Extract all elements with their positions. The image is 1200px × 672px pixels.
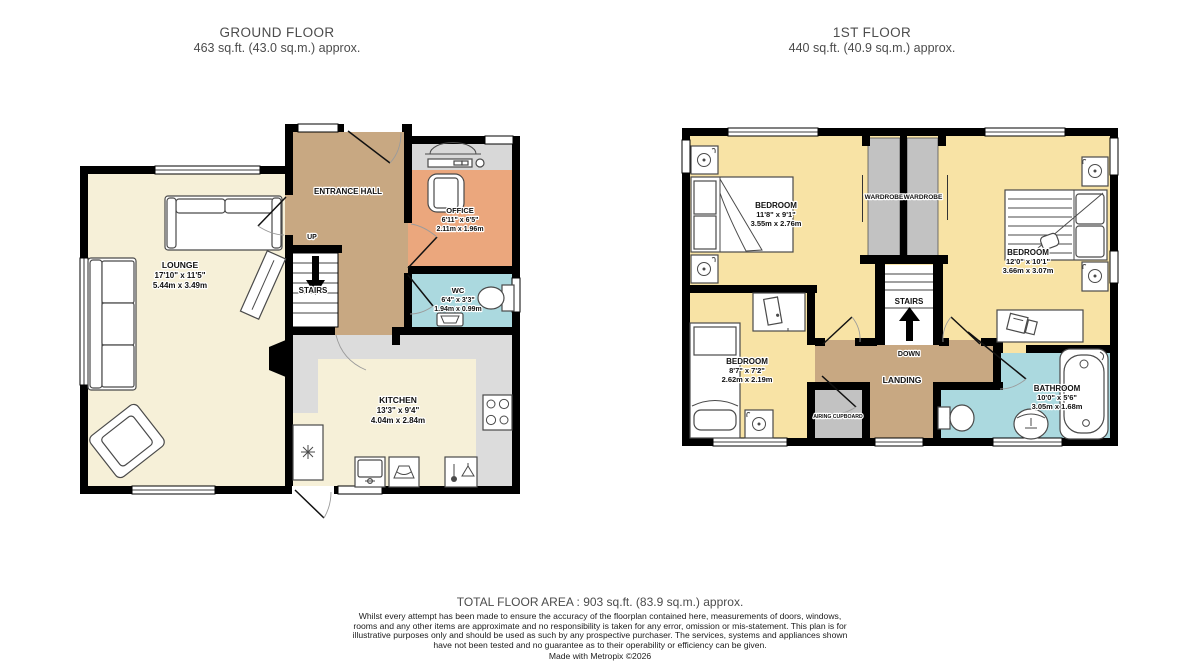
bathroom-label-ft: 10'0" x 5'6" [1037,393,1077,402]
lounge-label-name: LOUNGE [162,260,199,270]
bathroom-label-name: BATHROOM [1034,384,1081,393]
first-floor-area-text: 440 sq.ft. (40.9 sq.m.) approx. [672,41,1072,55]
ground-floor-title: GROUND FLOOR 463 sq.ft. (43.0 sq.m.) app… [77,25,477,55]
nightstand-icon [691,255,718,283]
landing-label: LANDING [883,375,922,385]
sofa-icon [165,196,282,250]
credit-text: Made with Metropix ©2026 [350,651,850,661]
disclaimer-text: Whilst every attempt has been made to en… [350,612,850,650]
nightstand-icon [745,410,773,438]
wc-sink-icon [437,313,463,326]
bathroom-sink-icon [1014,409,1048,439]
kitchen-label-ft: 13'3" x 9'4" [377,406,420,415]
desk-bedroom3-icon [753,293,805,331]
bedroom2-label-name: BEDROOM [1007,248,1049,257]
stairs-down-label: DOWN [898,351,920,358]
wc-label-name: WC [452,286,465,295]
nightstand-icon [1082,157,1108,186]
wc-toilet-icon [478,285,514,311]
kitchen-label-name: KITCHEN [379,395,417,405]
bedroom1-label-m: 3.55m x 2.76m [751,219,802,228]
stairs-up-label: UP [307,234,317,241]
lounge-label-m: 5.44m x 3.49m [153,281,207,290]
nightstand-icon [691,146,718,174]
wc-label-ft: 6'4" x 3'3" [441,297,474,304]
stove-icon [483,395,512,430]
fridge-icon [293,425,323,480]
desk-bedroom2-icon [997,310,1083,342]
first-floor-plan: BEDROOM 11'8" x 9'1" 3.55m x 2.76m WARDR… [670,118,1130,458]
bedroom3-label-name: BEDROOM [726,357,768,366]
first-floor-title-text: 1ST FLOOR [672,25,1072,40]
bathroom-label-m: 3.05m x 1.68m [1032,402,1083,411]
bedroom1-label-ft: 11'8" x 9'1" [756,210,796,219]
sofa-left-icon [88,258,136,390]
total-floor-area: TOTAL FLOOR AREA : 903 sq.ft. (83.9 sq.m… [350,595,850,609]
boiler-icon [445,457,477,487]
ground-floor-title-text: GROUND FLOOR [77,25,477,40]
nightstand-icon [1082,262,1108,291]
ground-floor-plan: LOUNGE 17'10" x 11'5" 5.44m x 3.49m ENTR… [70,118,540,538]
bedroom3-label-ft: 8'7" x 7'2" [729,366,765,375]
footer: TOTAL FLOOR AREA : 903 sq.ft. (83.9 sq.m… [350,595,850,661]
wc-label-m: 1.94m x 0.99m [434,306,481,313]
kitchen-label-m: 4.04m x 2.84m [371,416,425,425]
lounge-label-ft: 17'10" x 11'5" [155,271,206,280]
entrance-hall-label: ENTRANCE HALL [314,187,382,196]
stairs-first-label: STAIRS [895,297,924,306]
washer-icon [389,457,419,487]
office-label-name: OFFICE [446,206,474,215]
ground-floor-area-text: 463 sq.ft. (43.0 sq.m.) approx. [77,41,477,55]
office-label-ft: 6'11" x 6'5" [442,217,479,224]
wardrobe1-label: WARDROBE [865,194,904,201]
airing-cupboard-label: AIRING CUPBOARD [813,414,863,420]
bedroom2-label-m: 3.66m x 3.07m [1003,266,1054,275]
bedroom3-label-m: 2.62m x 2.19m [722,375,773,384]
toilet-icon [938,405,974,431]
bedroom2-label-ft: 12'0" x 10'1" [1006,257,1050,266]
first-floor-title: 1ST FLOOR 440 sq.ft. (40.9 sq.m.) approx… [672,25,1072,55]
bedroom1-label-name: BEDROOM [755,201,797,210]
kitchen-sink-icon [355,457,385,487]
wardrobe2-label: WARDROBE [904,194,943,201]
stairs-ground-label: STAIRS [299,286,328,295]
office-label-m: 2.11m x 1.96m [436,226,483,233]
